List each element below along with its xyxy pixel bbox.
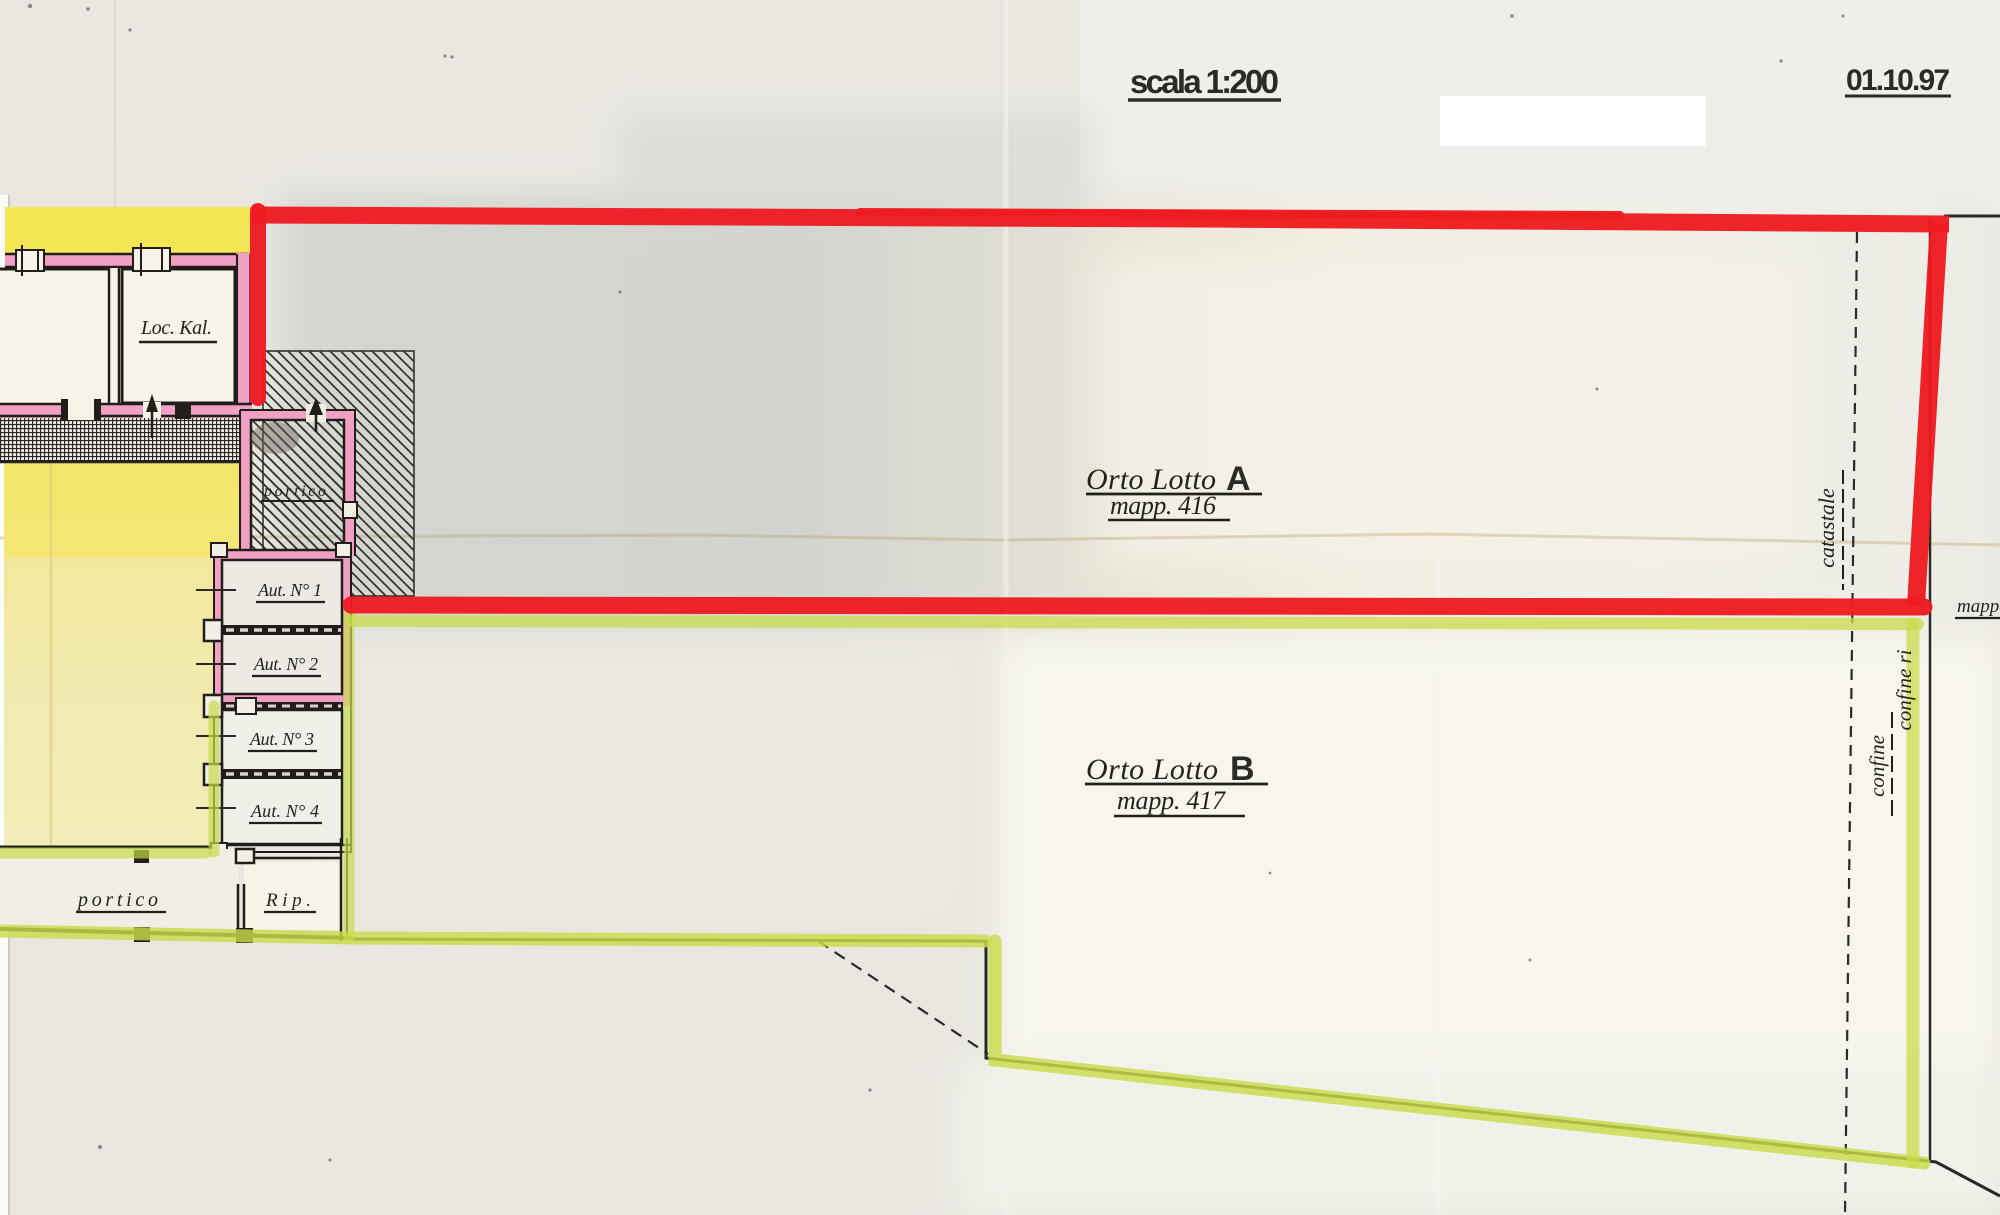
svg-text:01.10.97: 01.10.97: [1846, 64, 1950, 97]
svg-text:confine ri: confine ri: [1892, 649, 1916, 730]
svg-text:Loc. Kal.: Loc. Kal.: [140, 317, 212, 339]
svg-text:mapp. 416: mapp. 416: [1110, 491, 1216, 520]
svg-text:scala 1:200: scala 1:200: [1130, 63, 1280, 100]
svg-text:mapp. 417: mapp. 417: [1117, 786, 1226, 815]
svg-text:catastale: catastale: [1814, 488, 1839, 568]
svg-text:Aut. N° 4: Aut. N° 4: [250, 801, 319, 821]
svg-text:mappa: mappa: [1957, 596, 2000, 617]
svg-text:Orto Lotto: Orto Lotto: [1086, 753, 1218, 786]
svg-text:confine: confine: [1865, 735, 1889, 797]
svg-text:Aut. N° 3: Aut. N° 3: [249, 729, 314, 749]
svg-text:Aut. N° 2: Aut. N° 2: [253, 654, 318, 674]
svg-text:B: B: [1230, 750, 1255, 788]
svg-text:Aut. N° 1: Aut. N° 1: [257, 580, 322, 600]
svg-text:A: A: [1226, 460, 1251, 498]
